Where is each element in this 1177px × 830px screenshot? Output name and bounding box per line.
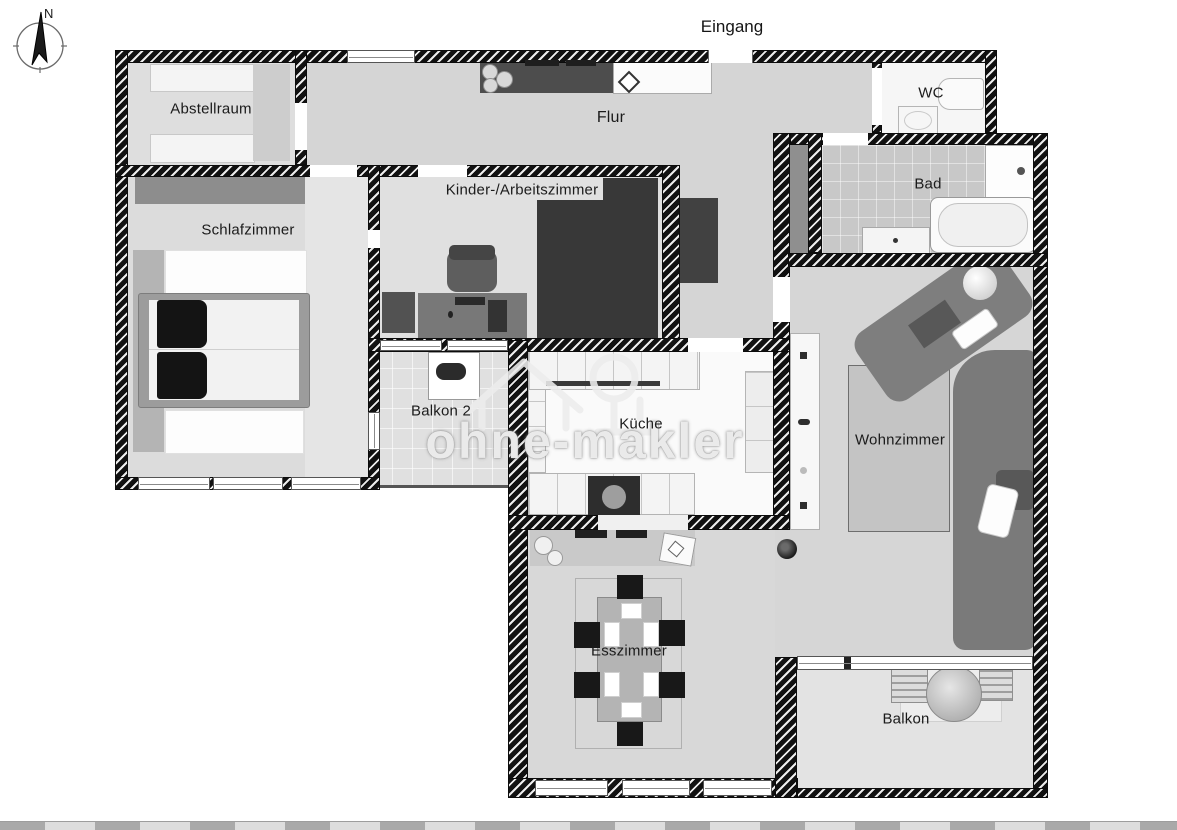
wall-segment [1033,133,1048,798]
dining-chair [574,672,600,698]
wall-segment [808,133,822,253]
room-label-flur: Flur [597,109,625,127]
door-opening-bad [823,133,868,145]
wc-sink [898,106,938,135]
room-label-wohnzimmer: Wohnzimmer [855,432,945,449]
schlafzimmer-floor-light [305,177,368,477]
door-opening-kueche [688,338,743,352]
dining-chair [659,672,685,698]
wall-segment [985,50,997,133]
shaft [790,145,808,253]
rug [165,250,307,294]
decor-plate [496,71,513,88]
flur-floor-right [790,63,872,133]
wall-segment [775,657,797,798]
keyboard [455,297,485,305]
flur-console [613,62,712,94]
window [535,780,608,796]
watermark-text: ohne-makler [400,412,770,470]
room-label-balkon2: Balkon 2 [411,403,471,420]
placemat [604,672,620,697]
wall-segment [773,133,790,530]
placemat [621,603,642,619]
wall-shelf [566,60,596,66]
decor-item [800,352,807,359]
stove [588,476,640,515]
room-label-kinder-arbeitszimmer: Kinder-/Arbeitszimmer [446,182,599,199]
window [622,780,690,796]
room-label-balkon: Balkon [882,711,929,728]
dining-chair [617,575,643,599]
wall-segment [662,165,680,345]
passage-kueche-esszimmer [598,515,688,530]
wall-segment [797,788,1048,798]
mouse [448,311,453,318]
toilet [938,78,984,110]
placemat [643,672,659,697]
window-frame-tick [844,657,851,669]
door-opening-wc [872,68,882,125]
room-label-esszimmer: Esszimmer [591,643,667,660]
bathtub [930,197,1036,253]
decor-item [798,419,810,425]
window [213,477,283,490]
shelf [150,134,255,163]
window-balcony-front [797,656,1033,670]
door-opening-schlafzimmer [310,165,357,177]
placemat [621,702,642,718]
pillow [157,300,207,348]
door-opening-entrance [708,50,753,63]
bed-split-line [149,349,299,350]
office-chair-back [449,245,495,260]
sink-drain [893,238,898,243]
decor-plate [483,78,498,93]
decor-strip [616,530,647,538]
pillow [157,352,207,399]
bathtub-basin [938,203,1028,247]
room-label-wc: WC [918,85,943,102]
window [703,780,772,796]
kids-wardrobe [537,200,658,343]
bottom-edge-strip [0,821,1177,830]
room-label-bad: Bad [914,176,941,193]
shower [985,145,1037,199]
plant [777,539,797,559]
balcony-table [926,666,982,722]
door-opening-wohnzimmer [773,277,790,322]
dining-chair [617,722,643,746]
decor-item [618,71,641,94]
wall-segment [115,165,680,177]
shelf [150,64,255,92]
bed [138,293,310,408]
desk [418,293,527,342]
room-label-schlafzimmer: Schlafzimmer [201,222,294,239]
room-label-kueche: Küche [619,416,663,433]
window [291,477,361,490]
wall-shelf [525,60,559,66]
door-opening-abstellraum [295,103,307,150]
shower-drain [1017,167,1025,175]
entrance-label: Eingang [701,17,763,37]
compass-north-label: N [44,6,53,21]
window [380,340,442,351]
balcony-chair [891,667,928,703]
decor-plate [547,550,563,566]
rug [165,410,304,454]
tv-sideboard [790,333,820,530]
floor-lamp [963,266,997,300]
bad-sink [862,227,930,254]
decor-item [800,502,807,509]
decor-item [800,467,807,474]
room-label-abstellraum: Abstellraum [170,101,251,118]
side-table [382,292,415,333]
window [138,477,210,490]
bedroom-wardrobe [135,177,305,204]
decor-strip [575,530,607,538]
door-opening-kinderzimmer [418,165,467,177]
corridor-wardrobe [680,198,718,283]
compass-icon: N [6,2,76,82]
wall-segment [788,253,1048,267]
window [347,50,415,63]
storage-strip [253,64,290,161]
sink-basin [904,111,932,130]
monitor [488,300,507,332]
window-balcony2-door [368,412,380,450]
balcony-chair [979,669,1013,701]
floor-plan: Eingang Abstellraum Flur WC Bad Schlafzi… [0,0,1177,830]
wall-segment [115,50,128,490]
door-opening-schlaf-kind [368,230,380,248]
stove-burner [602,485,626,509]
